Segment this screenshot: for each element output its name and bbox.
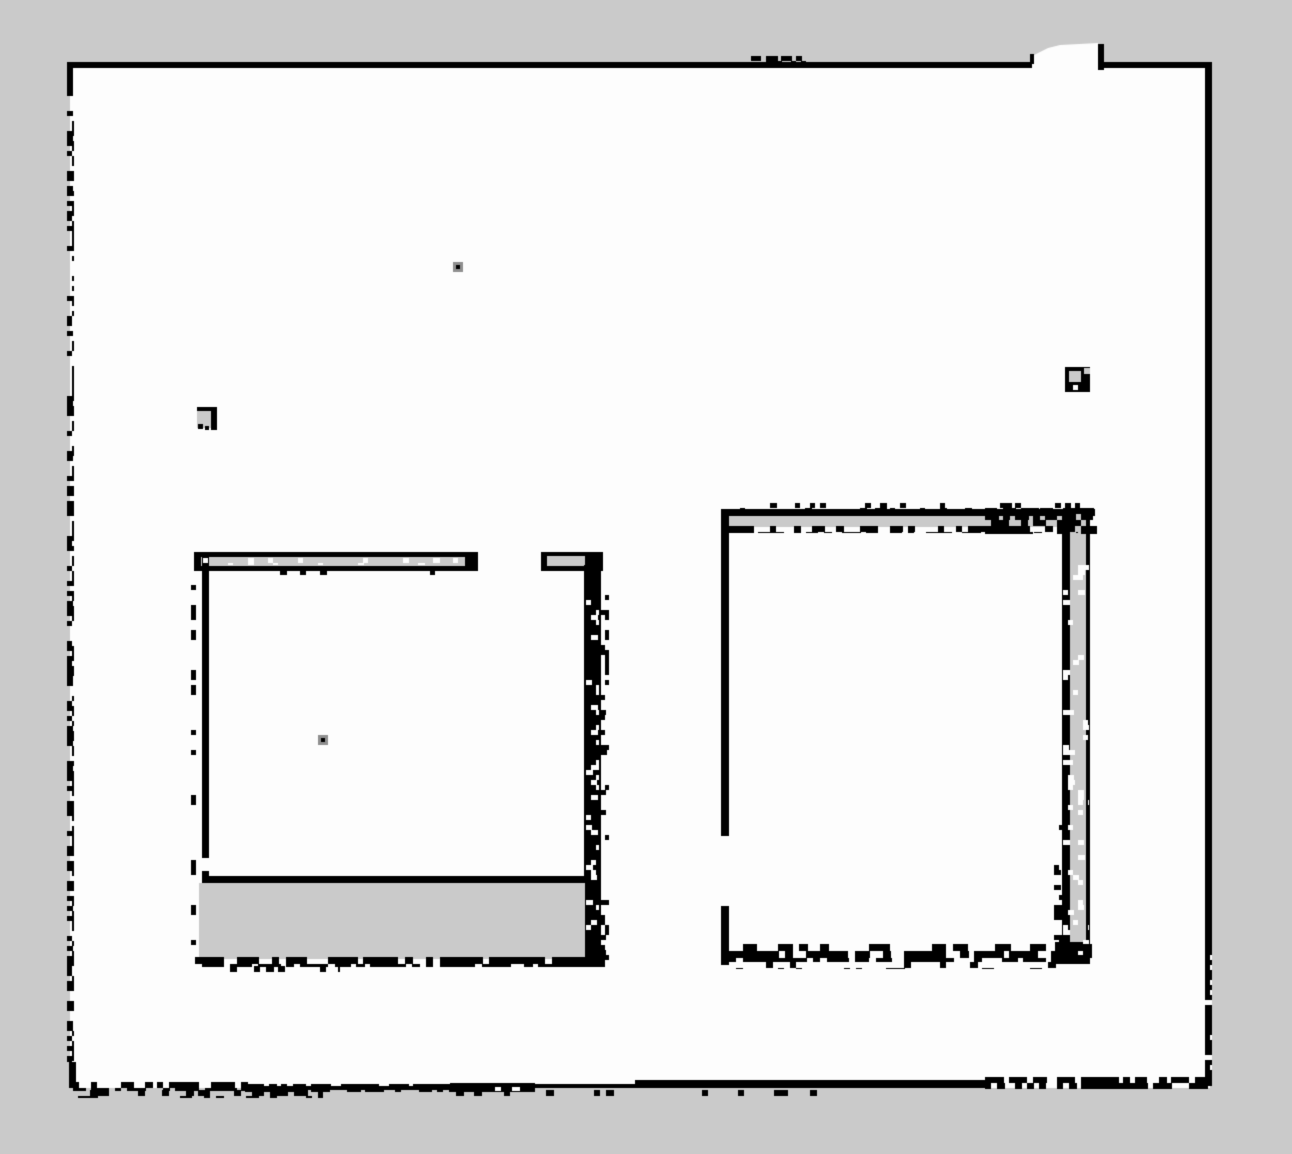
occupancy-grid-map bbox=[0, 0, 1292, 1154]
map-viewport bbox=[0, 0, 1292, 1154]
